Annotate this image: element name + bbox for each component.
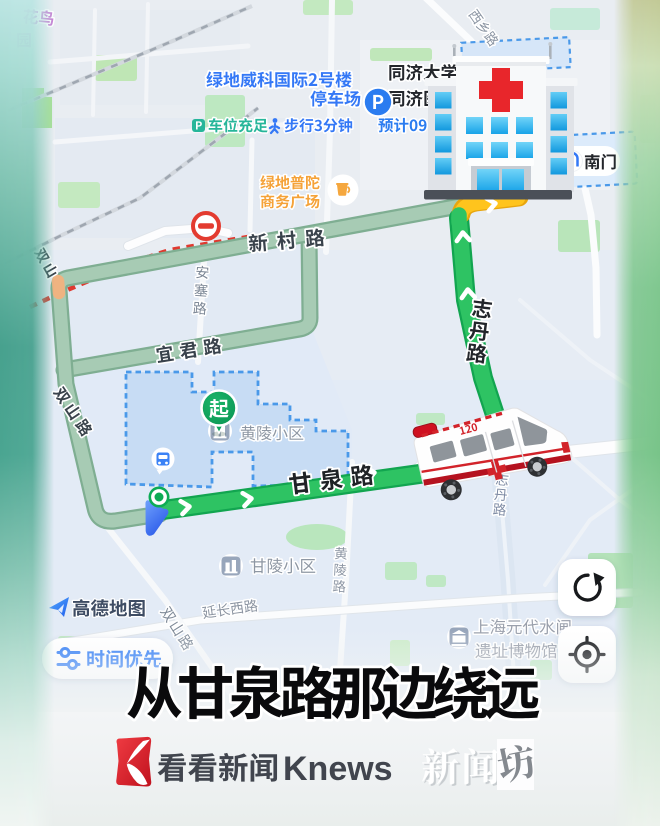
svg-text:Knews: Knews bbox=[283, 750, 393, 788]
